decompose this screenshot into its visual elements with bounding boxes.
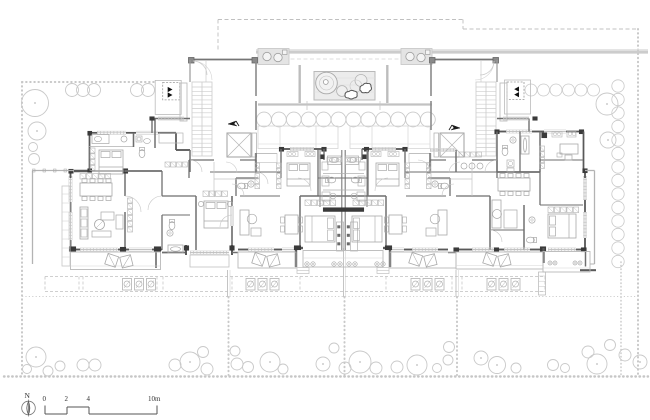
svg-text:N: N: [25, 391, 31, 400]
svg-text:4: 4: [87, 395, 91, 403]
svg-text:2: 2: [65, 395, 69, 403]
svg-text:10m: 10m: [148, 395, 161, 403]
svg-text:0: 0: [43, 395, 47, 403]
